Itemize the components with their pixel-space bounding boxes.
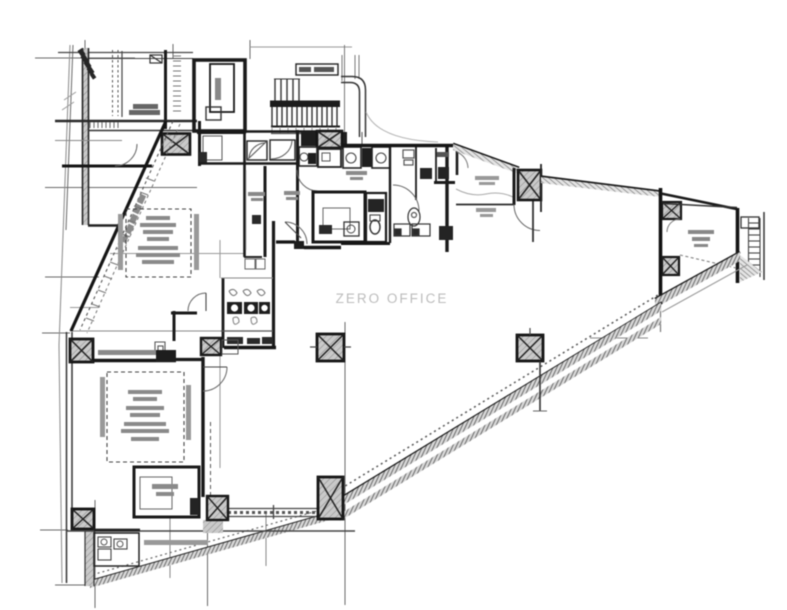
svg-text:ZERO OFFICE: ZERO OFFICE [336, 291, 449, 306]
